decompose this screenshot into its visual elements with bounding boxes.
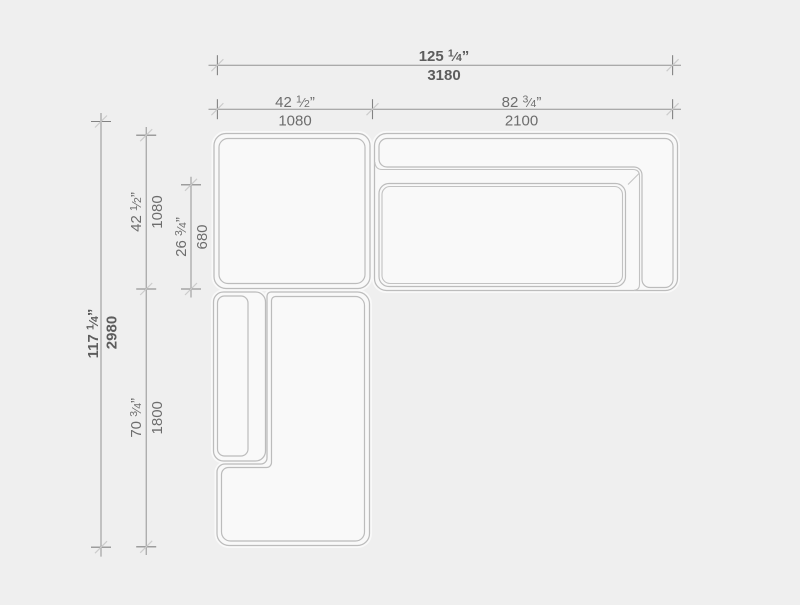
svg-text:1080: 1080 bbox=[149, 195, 166, 228]
svg-text:42 1⁄2”: 42 1⁄2” bbox=[128, 192, 145, 232]
svg-text:70 3⁄4”: 70 3⁄4” bbox=[128, 398, 145, 438]
svg-text:2980: 2980 bbox=[103, 316, 120, 349]
svg-text:3180: 3180 bbox=[427, 67, 460, 84]
svg-text:1800: 1800 bbox=[149, 401, 166, 434]
svg-text:26 3⁄4”: 26 3⁄4” bbox=[173, 217, 190, 257]
svg-text:82 3⁄4”: 82 3⁄4” bbox=[502, 94, 542, 111]
svg-text:42 1⁄2”: 42 1⁄2” bbox=[275, 94, 315, 111]
svg-text:680: 680 bbox=[194, 224, 211, 249]
svg-text:125 1⁄4”: 125 1⁄4” bbox=[419, 48, 470, 65]
svg-text:1080: 1080 bbox=[278, 112, 311, 129]
svg-text:117 1⁄4”: 117 1⁄4” bbox=[85, 309, 102, 359]
svg-text:2100: 2100 bbox=[505, 112, 538, 129]
